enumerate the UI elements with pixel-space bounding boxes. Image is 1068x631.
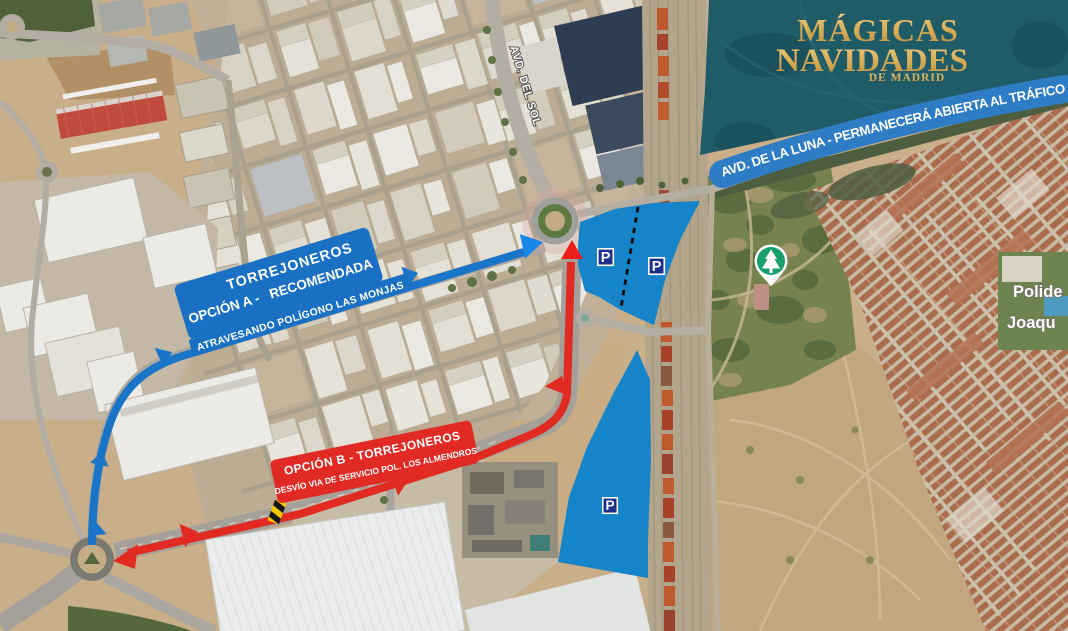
svg-text:Polide: Polide bbox=[1013, 283, 1063, 301]
svg-text:P: P bbox=[601, 250, 611, 266]
svg-text:DE MADRID: DE MADRID bbox=[869, 72, 945, 84]
svg-text:P: P bbox=[652, 259, 662, 275]
svg-text:Joaqu: Joaqu bbox=[1007, 314, 1056, 332]
svg-text:P: P bbox=[605, 498, 614, 513]
